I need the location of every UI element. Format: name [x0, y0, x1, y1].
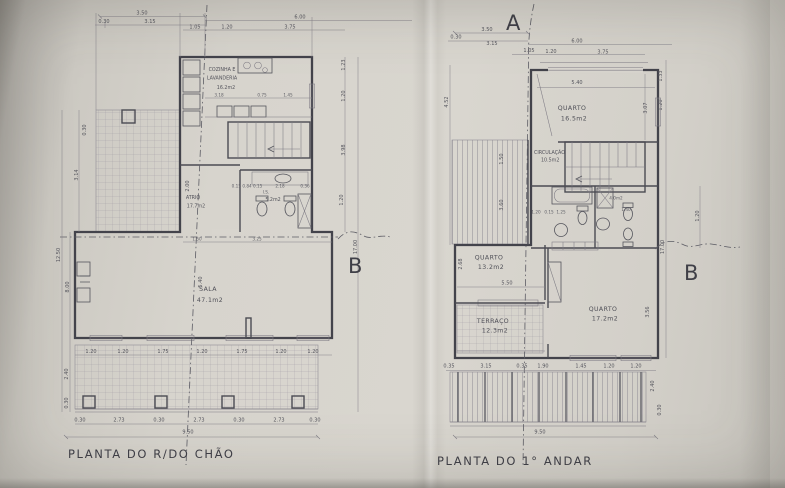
dim-label: 1.33 [658, 70, 664, 81]
dim-label: 1.20 [307, 349, 318, 355]
dim-label: 1.25 [556, 210, 566, 215]
dim-label: 8.00 [65, 281, 71, 292]
room-label-terraco: TERRAÇO [476, 318, 509, 325]
room-area-terraco: 12.3m2 [482, 328, 508, 335]
dim-label: 6.00 [571, 39, 582, 45]
dim-label: 3.50 [136, 11, 147, 17]
room-area-kitchen: 16.2m2 [217, 85, 235, 91]
fireplace [77, 262, 90, 302]
dim-label: 1.45 [575, 364, 586, 370]
roof-hatch-upper [452, 140, 528, 244]
room-label-bath: I.S. [263, 190, 270, 195]
dim-label: 2.73 [193, 418, 204, 424]
dim-label: 3.56 [645, 306, 651, 317]
dim-label: 1.05 [523, 48, 534, 54]
stairs [228, 122, 310, 158]
patio-tiles [96, 110, 180, 232]
dim-label: 1.20 [196, 349, 207, 355]
first-floor-plan: A 3.50 0.30 3.15 6.00 1.05 1.20 3.75 5.4… [437, 4, 740, 468]
dim-label: 3.25 [252, 237, 262, 242]
section-marker-b: B [348, 254, 362, 278]
room-area-circulacao: 10.5m2 [541, 158, 559, 164]
dim-label: 1.20 [117, 349, 128, 355]
dim-label-total: 9.50 [182, 430, 193, 436]
stairs [565, 142, 645, 192]
dim-label: 1.20 [221, 25, 232, 31]
room-label-kitchen: LAVANDERIA [207, 76, 238, 82]
dim-label: 5.40 [571, 80, 582, 86]
dim-label: 3.75 [284, 25, 295, 31]
dim-label: 3.14 [74, 169, 80, 180]
bathroom-fixtures [252, 172, 311, 228]
dim-label: 2.18 [275, 184, 285, 189]
dim-label: 0.36 [300, 184, 310, 189]
dim-label: 1.90 [537, 364, 548, 370]
dim-label: 0.30 [64, 397, 70, 408]
room-area-sala: 47.1m2 [197, 297, 223, 304]
room-label-circulacao: CIRCULAÇÃO [534, 149, 565, 156]
dim-label: 1.23 [341, 59, 347, 70]
dim-label: 0.30 [74, 418, 85, 424]
dim-label: 0.30 [309, 418, 320, 424]
dim-label: 2.68 [458, 258, 464, 269]
plan-title-first: PLANTA DO 1° ANDAR [437, 454, 593, 468]
dim-label: 1.20 [85, 349, 96, 355]
paper-edge-shade [740, 0, 770, 488]
section-marker-a: A [506, 11, 521, 35]
room-label-kitchen: COZINHA E [209, 67, 236, 73]
dim-label: 3.07 [643, 102, 649, 113]
dim-label: 3.18 [214, 93, 224, 98]
room-area-atrio: 17.7m2 [187, 204, 205, 210]
dim-label: 17.00 [660, 240, 666, 254]
roof-hatch-lower [450, 372, 646, 422]
dim-label: 0.30 [657, 404, 663, 415]
plan-title-ground: PLANTA DO R/DO CHÃO [68, 446, 235, 461]
dim-label: 1.75 [157, 349, 168, 355]
dim-label: 1.50 [192, 237, 202, 242]
section-line-b [655, 241, 740, 249]
dim-label: 1.20 [341, 90, 347, 101]
dim-label: 0.15 [544, 210, 554, 215]
dim-label: 3.15 [486, 41, 497, 47]
floor-plan-drawing: 3.50 0.30 3.15 6.00 1.05 1.20 3.75 COZIN… [0, 0, 785, 488]
dim-label: 0.30 [153, 418, 164, 424]
room-area-quarto1: 16.5m2 [561, 116, 587, 123]
dim-label: 3.60 [499, 199, 505, 210]
dim-label: 1.75 [236, 349, 247, 355]
dim-label: 2.40 [64, 368, 70, 379]
dim-label: 5.50 [501, 281, 512, 287]
dim-label: 2.73 [273, 418, 284, 424]
dim-label: 1.20 [630, 364, 641, 370]
room-area-quarto2: 13.2m2 [478, 264, 504, 271]
section-marker-b: B [684, 261, 698, 285]
dim-label: 1.20 [658, 99, 664, 110]
door-opening [212, 229, 244, 234]
room-label-quarto3: QUARTO [589, 306, 618, 313]
dim-label: 3.15 [480, 364, 491, 370]
dim-label: 1.20 [275, 349, 286, 355]
dim-label: 3.50 [481, 27, 492, 33]
room-area-bath: 5.2m2 [265, 197, 280, 203]
room-label-sala: SALA [199, 286, 217, 293]
dim-label: 6.00 [294, 15, 305, 21]
dim-label: 3.75 [597, 50, 608, 56]
closet [548, 242, 598, 302]
dim-label: 1.20 [531, 210, 541, 215]
dim-label: 0.30 [450, 35, 461, 41]
dim-label: 1.20 [603, 364, 614, 370]
dim-label: 0.35 [516, 364, 527, 370]
dim-label: 1.05 [189, 25, 200, 31]
paper-crease [412, 0, 446, 488]
dim-label-total: 9.50 [534, 430, 545, 436]
room-area-quarto3: 17.2m2 [592, 316, 618, 323]
room-area-bath: 4.0m2 [609, 196, 623, 201]
ground-floor-plan: 3.50 0.30 3.15 6.00 1.05 1.20 3.75 COZIN… [56, 5, 412, 465]
dim-label: 1.50 [499, 153, 505, 164]
dim-label: 1.45 [283, 93, 293, 98]
dim-label: 2.40 [650, 380, 656, 391]
dim-label: 1.20 [695, 210, 701, 221]
dim-label: 2.00 [185, 180, 191, 191]
dim-label: 1.40 [621, 207, 631, 212]
dim-label: 1.20 [545, 49, 556, 55]
room-label-atrio: ATRIO [186, 195, 201, 201]
dim-label: 1.20 [339, 194, 345, 205]
room-label-quarto2: QUARTO [475, 255, 504, 262]
dim-label: 0.30 [233, 418, 244, 424]
dim-label: 0.75 [257, 93, 267, 98]
room-label-quarto1: QUARTO [558, 105, 587, 112]
dim-label: 3.15 [144, 19, 155, 25]
dim-label: 0.30 [82, 124, 88, 135]
dim-label: 0.15 0.84 0.15 [232, 184, 263, 189]
dim-label: 2.73 [113, 418, 124, 424]
dim-label: 3.98 [341, 144, 347, 155]
pier [246, 318, 251, 338]
dim-label: 17.00 [353, 240, 359, 254]
scanned-floor-plan-photo: 3.50 0.30 3.15 6.00 1.05 1.20 3.75 COZIN… [0, 0, 785, 488]
dim-label: 0.30 [98, 19, 109, 25]
dim-label: 12.50 [56, 248, 62, 262]
